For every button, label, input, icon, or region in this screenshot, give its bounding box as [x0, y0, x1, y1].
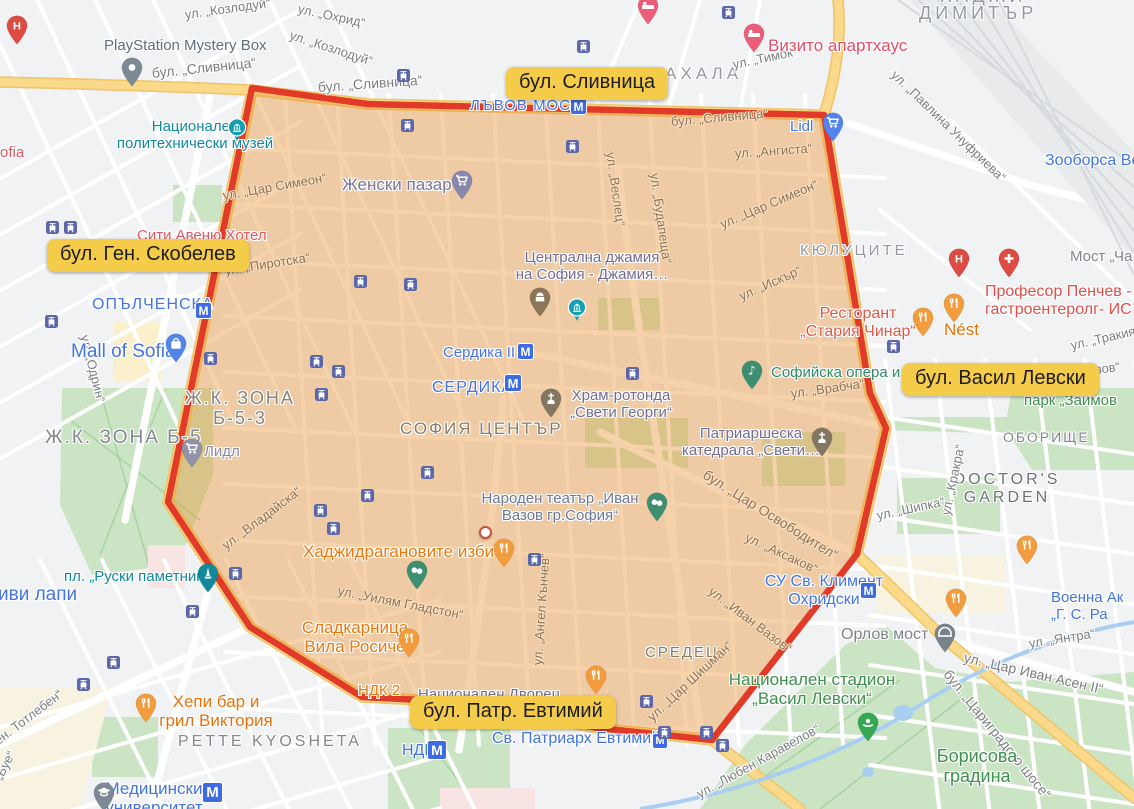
poi-pin-restaurant[interactable]	[493, 538, 515, 573]
poi-label[interactable]: Орлов мост	[841, 626, 928, 644]
tram-stop-icon[interactable]	[404, 278, 417, 296]
poi-label[interactable]: Военна Ак„Г. С. Ра	[1051, 590, 1123, 624]
poi-pin-university[interactable]	[93, 782, 115, 809]
poi-pin-market[interactable]	[451, 170, 473, 205]
tram-stop-icon[interactable]	[64, 221, 77, 239]
poi-badge-museum[interactable]	[567, 298, 587, 329]
tram-stop-icon[interactable]	[315, 388, 328, 406]
location-dot	[479, 526, 492, 539]
poi-pin-restaurant[interactable]	[912, 307, 934, 342]
poi-label[interactable]: Ресторант„Стария Чинар“	[800, 305, 915, 341]
poi-pin-mall[interactable]	[165, 333, 187, 368]
tram-stop-icon[interactable]	[204, 352, 217, 370]
svg-text:♪: ♪	[748, 364, 756, 378]
transit-station-label[interactable]: Медицинскиуниверситет	[105, 779, 202, 809]
tram-stop-icon[interactable]	[327, 522, 340, 540]
poi-pin-hotel[interactable]	[637, 0, 659, 30]
road-annotation-evtimiy: бул. Патр. Евтимий	[410, 696, 616, 729]
poi-pin-monument[interactable]	[197, 563, 219, 598]
area-label: DOCTOR'SGARDEN	[954, 471, 1061, 507]
poi-pin-bridge[interactable]	[934, 623, 956, 658]
area-label: КЮЛУЦИТЕ	[800, 243, 908, 260]
tram-stop-icon[interactable]	[354, 275, 367, 293]
tram-stop-icon[interactable]	[640, 695, 653, 713]
poi-label[interactable]: Женски пазар	[342, 175, 452, 194]
poi-pin-playstation-store[interactable]	[121, 57, 143, 92]
metro-station-icon[interactable]: М	[860, 582, 877, 599]
map-canvas[interactable]: бул. Сливница бул. Ген. Скобелев бул. Ва…	[0, 0, 1134, 809]
tram-stop-icon[interactable]	[332, 365, 345, 383]
transit-station-label[interactable]: СЕРДИКА	[432, 379, 513, 397]
tram-stop-icon[interactable]	[361, 489, 374, 507]
poi-label[interactable]: Лидл	[204, 444, 240, 461]
poi-pin-restaurant[interactable]	[945, 588, 967, 623]
road-annotation-slivnitsa: бул. Сливница	[506, 67, 668, 100]
road-annotation-skobelev: бул. Ген. Скобелев	[47, 239, 249, 272]
poi-label[interactable]: Lidl	[790, 119, 813, 136]
poi-pin-mosque[interactable]	[529, 287, 551, 322]
area-label: Ж.К. ЗОНА Б-5	[45, 427, 203, 448]
poi-badge-museum[interactable]	[227, 118, 247, 149]
transit-station-label[interactable]: Св. Патриарх Евтимий	[492, 730, 660, 748]
metro-station-icon[interactable]: М	[427, 740, 447, 760]
area-label: ДИМИТЪР	[919, 3, 1037, 23]
tram-stop-icon[interactable]	[566, 140, 579, 158]
poi-pin-supermarket[interactable]	[181, 438, 203, 473]
poi-label[interactable]: СладкарницаВила Росиче	[302, 618, 408, 656]
poi-label[interactable]: ofia	[0, 145, 24, 162]
poi-pin-restaurant[interactable]	[943, 293, 965, 328]
poi-pin-supermarket[interactable]	[822, 112, 844, 147]
tram-stop-icon[interactable]	[722, 6, 735, 24]
poi-pin-hospital[interactable]: H	[6, 15, 28, 50]
metro-station-icon[interactable]: М	[195, 302, 212, 319]
poi-pin-cathedral[interactable]	[811, 427, 833, 462]
poi-pin-restaurant[interactable]	[1016, 535, 1038, 570]
tram-stop-icon[interactable]	[397, 69, 410, 87]
tram-stop-icon[interactable]	[77, 678, 90, 696]
poi-label[interactable]: Централна джамияна София - Джамия…	[516, 250, 669, 284]
poi-pin-restaurant[interactable]	[398, 628, 420, 663]
tram-stop-icon[interactable]	[421, 466, 434, 484]
area-label: СОФИЯ ЦЕНТЪР	[400, 419, 563, 438]
metro-station-icon[interactable]: М	[570, 98, 587, 115]
metro-station-icon[interactable]: М	[202, 782, 223, 803]
poi-label[interactable]: Националенполитехнически музей	[117, 119, 273, 153]
poi-label[interactable]: Mall of Sofia	[71, 341, 176, 362]
poi-label[interactable]: НДК 2	[358, 683, 400, 700]
tram-stop-icon[interactable]	[626, 367, 639, 385]
tram-stop-icon[interactable]	[314, 504, 327, 522]
tram-stop-icon[interactable]	[107, 656, 120, 674]
tram-stop-icon[interactable]	[658, 726, 671, 744]
poi-pin-theatre[interactable]	[646, 492, 668, 527]
poi-label[interactable]: Хепи бар игрил Виктория	[159, 692, 272, 730]
tram-stop-icon[interactable]	[45, 315, 58, 333]
tram-stop-icon[interactable]	[528, 553, 541, 571]
poi-label[interactable]: Професор Пенчев -гастроентеролг- ИС	[985, 283, 1132, 319]
poi-label[interactable]: Храм-ротонда„Свети Георги“	[570, 388, 672, 422]
poi-pin-theatre[interactable]	[406, 560, 428, 595]
tram-stop-icon[interactable]	[229, 567, 242, 585]
poi-label[interactable]: Мост „Ча	[1070, 249, 1132, 266]
area-label: Ж.К. ЗОНАБ-5-3	[185, 388, 295, 428]
poi-pin-opera[interactable]: ♪	[741, 360, 763, 395]
tram-stop-icon[interactable]	[46, 221, 59, 239]
poi-pin-stadium[interactable]	[857, 712, 879, 747]
area-label: PETTE KYOSHETA	[178, 733, 362, 751]
tram-stop-icon[interactable]	[577, 40, 590, 58]
poi-label[interactable]: PlayStation Mystery Box	[104, 38, 267, 55]
tram-stop-icon[interactable]	[716, 739, 729, 757]
poi-label[interactable]: пл. „Руски паметник“	[64, 569, 208, 586]
transit-station-label[interactable]: Сердика II	[443, 345, 515, 362]
svg-text:H: H	[13, 21, 21, 33]
poi-pin-church[interactable]	[540, 388, 562, 423]
metro-station-icon[interactable]: М	[504, 374, 522, 392]
poi-pin-clinic[interactable]	[998, 248, 1020, 283]
tram-stop-icon[interactable]	[401, 119, 414, 137]
poi-pin-hotel[interactable]	[743, 23, 765, 58]
area-label: ОБОРИЩЕ	[1003, 430, 1090, 446]
poi-pin-restaurant[interactable]	[585, 665, 607, 700]
poi-pin-restaurant[interactable]	[135, 693, 157, 728]
poi-pin-hospital[interactable]: H	[948, 248, 970, 283]
poi-label[interactable]: Хаджидрагановите изби	[303, 542, 494, 561]
metro-station-icon[interactable]: М	[517, 343, 534, 360]
road-annotation-levski: бул. Васил Левски	[902, 363, 1099, 396]
transit-station-label[interactable]: ЛЪВОВ МОСТ	[470, 98, 581, 115]
svg-text:H: H	[955, 254, 963, 266]
poi-label[interactable]: Визито апартхаус	[768, 36, 907, 55]
poi-label[interactable]: Борисоваградина	[937, 746, 1017, 786]
poi-label[interactable]: Национален стадион„Васил Левски“	[729, 670, 896, 708]
poi-label[interactable]: Зооборса Ве	[1045, 152, 1134, 170]
poi-label[interactable]: Народен театър „ИванВазов гр.София“	[481, 491, 638, 525]
tram-stop-icon[interactable]	[887, 340, 900, 358]
poi-label[interactable]: Патриаршескакатедрала „Свети…	[682, 426, 820, 460]
tram-stop-icon[interactable]	[310, 355, 323, 373]
tram-stop-icon[interactable]	[700, 726, 713, 744]
tram-stop-icon[interactable]	[186, 605, 199, 623]
poi-label[interactable]: иви лапи	[0, 584, 77, 605]
